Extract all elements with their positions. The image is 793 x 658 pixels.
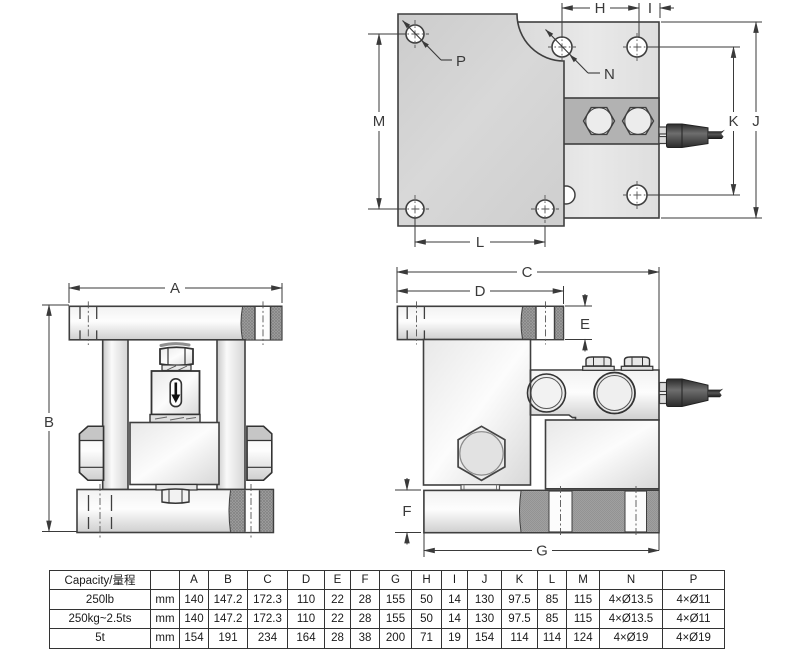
svg-text:G: G	[536, 543, 548, 560]
svg-text:A: A	[170, 280, 180, 297]
svg-text:K: K	[728, 113, 738, 130]
svg-text:L: L	[476, 234, 484, 251]
svg-text:D: D	[475, 283, 486, 300]
svg-text:F: F	[402, 503, 411, 520]
svg-text:M: M	[373, 113, 386, 130]
svg-text:J: J	[752, 113, 760, 130]
svg-text:P: P	[456, 53, 466, 70]
svg-text:N: N	[604, 66, 615, 83]
svg-text:B: B	[44, 414, 54, 431]
svg-text:H: H	[595, 0, 606, 17]
svg-text:E: E	[580, 316, 590, 333]
svg-text:C: C	[522, 264, 533, 281]
svg-text:I: I	[648, 0, 652, 17]
